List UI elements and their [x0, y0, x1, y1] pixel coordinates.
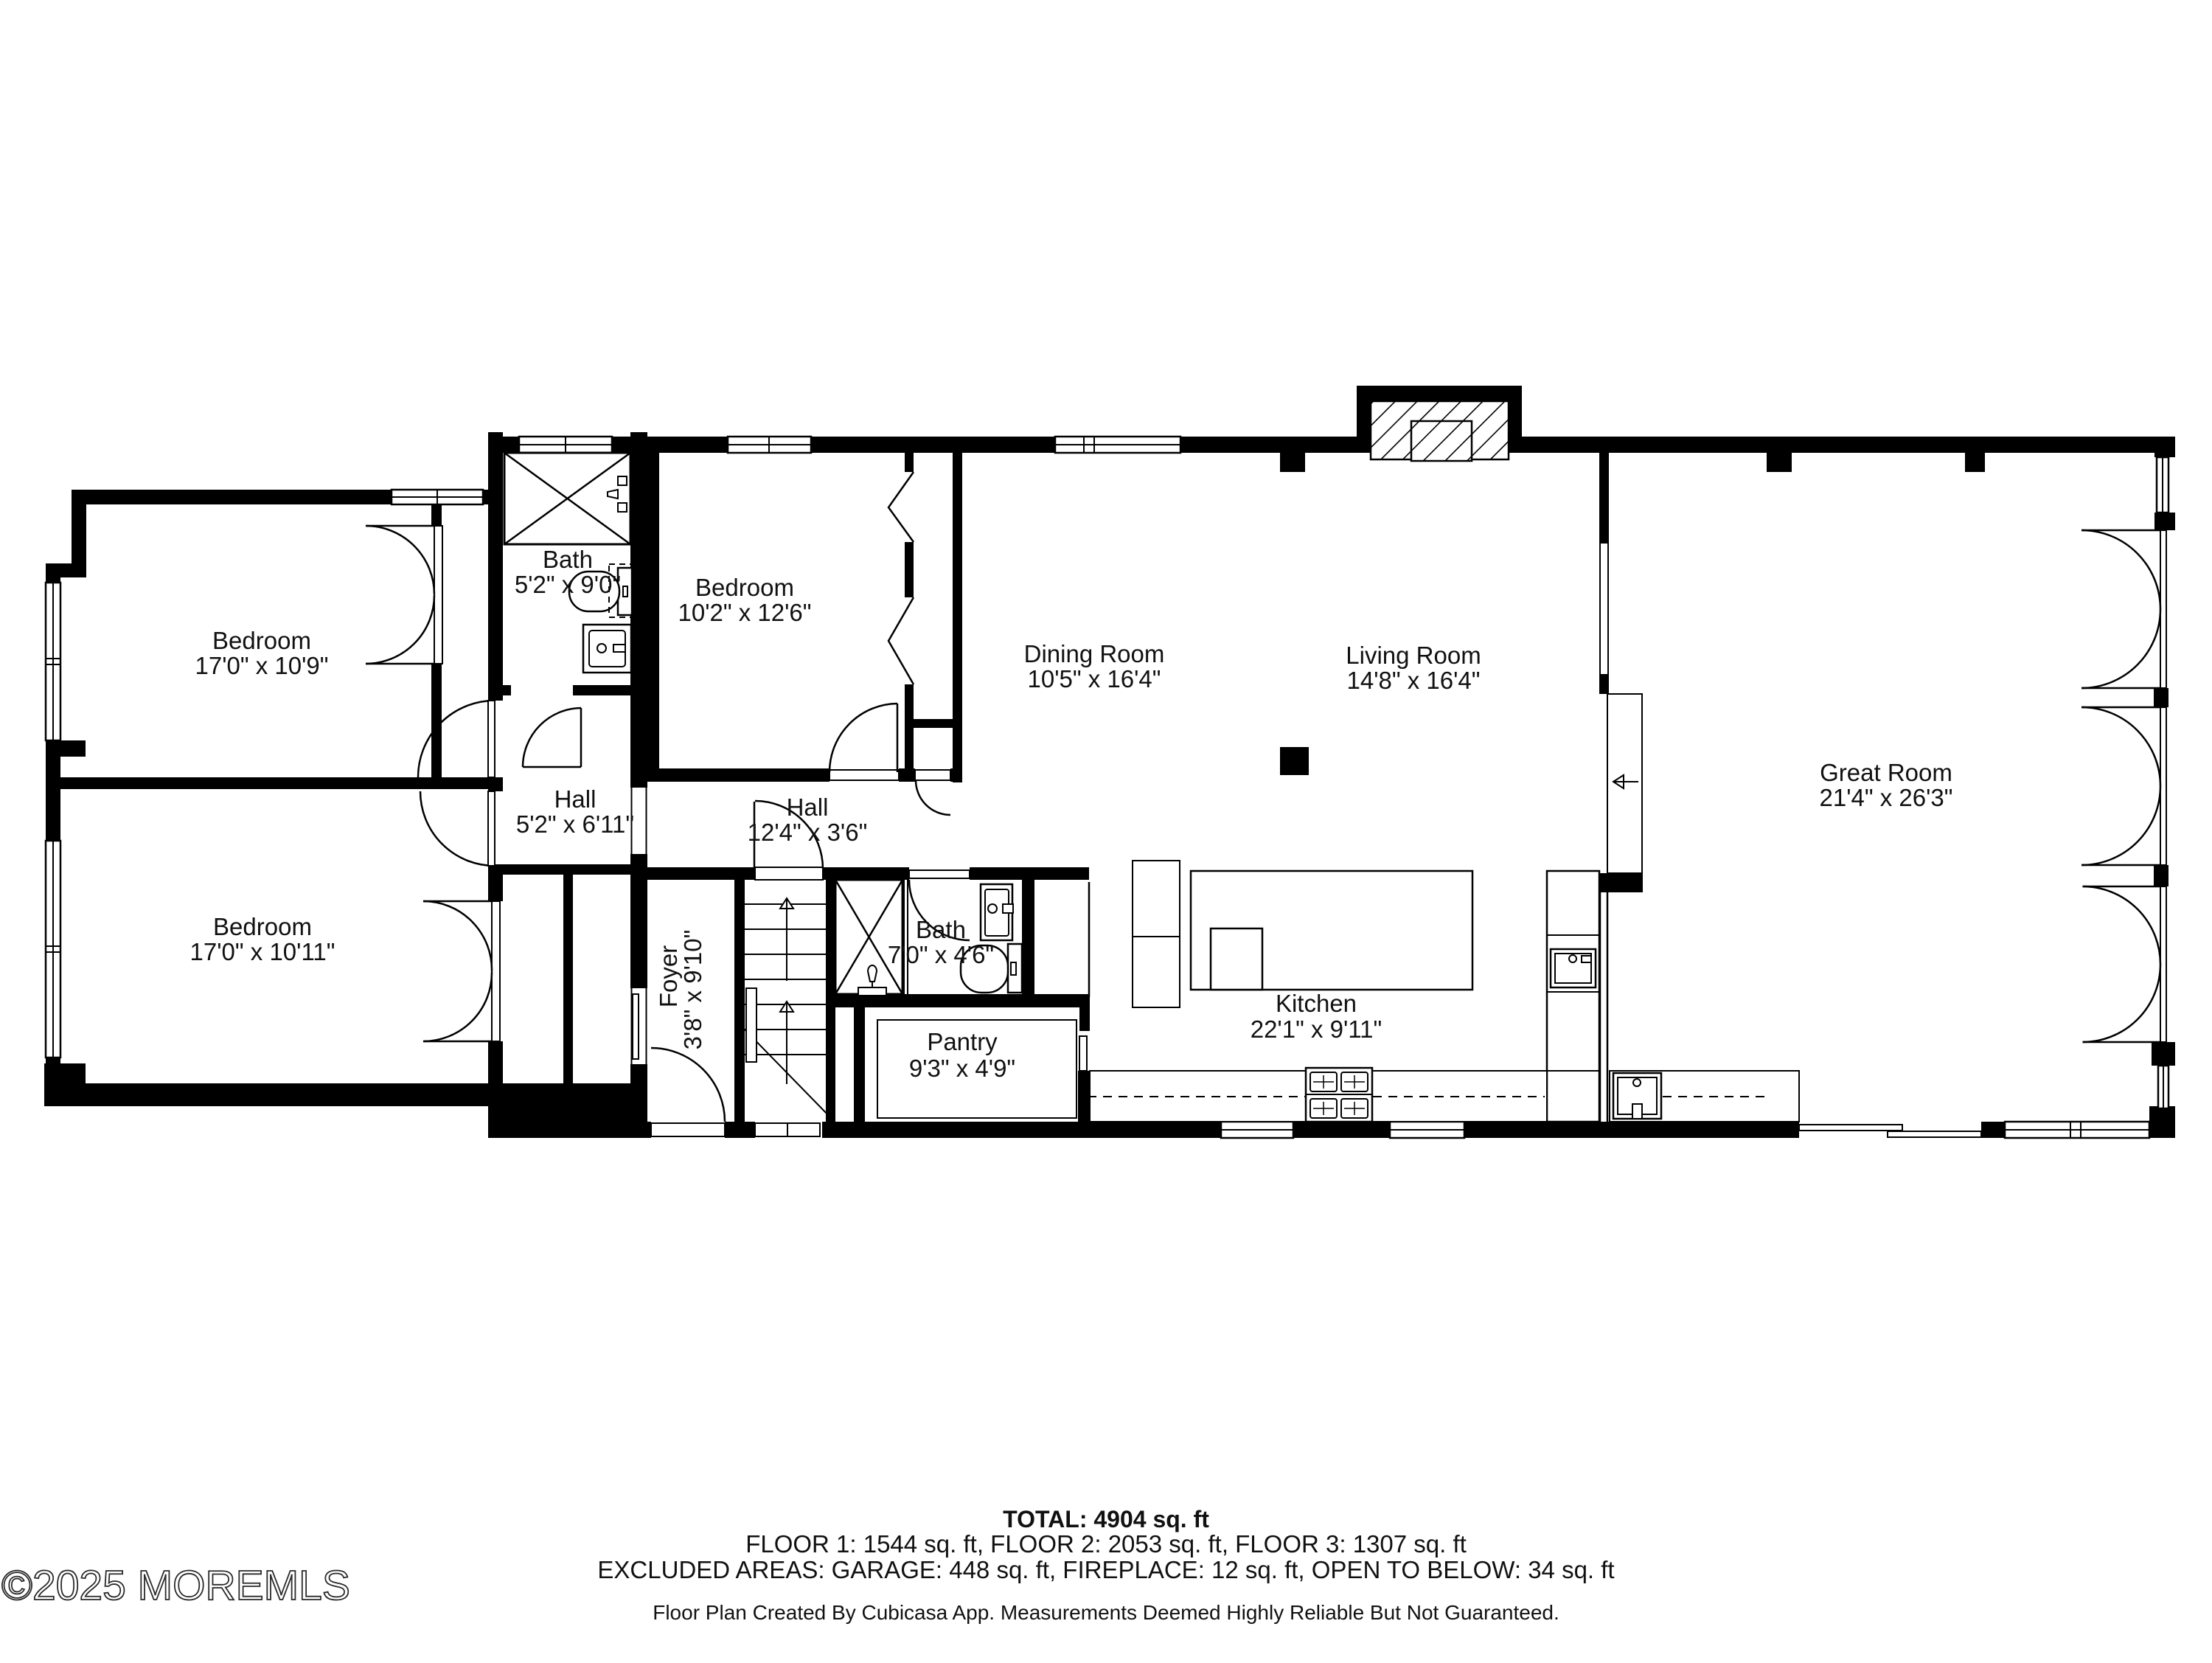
svg-text:FLOOR 1: 1544 sq. ft, FLOOR 2:: FLOOR 1: 1544 sq. ft, FLOOR 2: 2053 sq. … — [745, 1530, 1467, 1558]
svg-text:Kitchen: Kitchen — [1276, 990, 1357, 1017]
svg-text:Dining Room: Dining Room — [1024, 640, 1165, 667]
svg-text:Bedroom: Bedroom — [212, 627, 311, 654]
svg-text:Bath: Bath — [916, 916, 966, 943]
svg-text:EXCLUDED AREAS: GARAGE: 448 sq: EXCLUDED AREAS: GARAGE: 448 sq. ft, FIRE… — [597, 1556, 1614, 1583]
svg-text:Floor Plan Created By Cubicasa: Floor Plan Created By Cubicasa App. Meas… — [653, 1601, 1559, 1624]
svg-text:TOTAL: 4904 sq. ft: TOTAL: 4904 sq. ft — [1003, 1506, 1209, 1532]
svg-text:Bath: Bath — [543, 546, 593, 573]
svg-text:10'2" x 12'6": 10'2" x 12'6" — [678, 599, 812, 626]
svg-text:Living Room: Living Room — [1346, 642, 1481, 669]
svg-text:17'0" x 10'9": 17'0" x 10'9" — [195, 652, 329, 679]
svg-text:22'1" x 9'11": 22'1" x 9'11" — [1251, 1015, 1382, 1043]
svg-text:7'0" x 4'6": 7'0" x 4'6" — [888, 941, 994, 968]
svg-text:12'4" x 3'6": 12'4" x 3'6" — [748, 819, 868, 846]
svg-text:Bedroom: Bedroom — [695, 574, 794, 601]
svg-text:21'4" x 26'3": 21'4" x 26'3" — [1820, 784, 1953, 811]
svg-text:14'8" x 16'4": 14'8" x 16'4" — [1347, 667, 1481, 694]
svg-text:5'2" x 6'11": 5'2" x 6'11" — [516, 810, 634, 838]
svg-text:Pantry: Pantry — [927, 1028, 998, 1055]
svg-text:17'0" x 10'11": 17'0" x 10'11" — [190, 938, 335, 965]
svg-text:3'8" x 9'10": 3'8" x 9'10" — [679, 930, 706, 1050]
svg-text:Great Room: Great Room — [1820, 759, 1952, 786]
svg-text:Bedroom: Bedroom — [213, 913, 312, 940]
svg-text:9'3" x 4'9": 9'3" x 4'9" — [909, 1055, 1015, 1082]
svg-text:Foyer: Foyer — [655, 945, 682, 1007]
svg-text:Hall: Hall — [787, 794, 829, 821]
svg-text:10'5" x 16'4": 10'5" x 16'4" — [1028, 665, 1161, 692]
svg-text:Hall: Hall — [554, 785, 597, 813]
svg-text:5'2" x 9'0": 5'2" x 9'0" — [515, 571, 621, 598]
svg-text:©2025 MOREMLS: ©2025 MOREMLS — [1, 1562, 350, 1609]
